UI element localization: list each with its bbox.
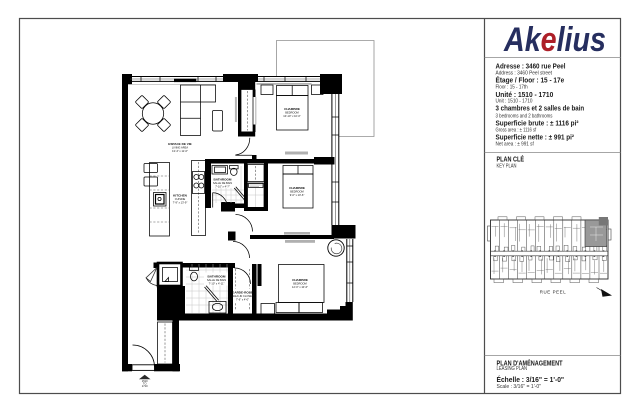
svg-text:7'-10" x 4'-11": 7'-10" x 4'-11"	[209, 281, 225, 285]
svg-text:BATHROOM: BATHROOM	[208, 275, 226, 279]
svg-text:SALLE DE BAIN: SALLE DE BAIN	[213, 181, 232, 185]
svg-text:Floor : 15 - 17th: Floor : 15 - 17th	[496, 84, 528, 90]
svg-text:BATHROOM: BATHROOM	[214, 178, 232, 182]
svg-text:7'-9" x 13'-9": 7'-9" x 13'-9"	[173, 200, 188, 204]
svg-text:1710: 1710	[142, 384, 148, 388]
svg-text:3 bedrooms and 2 bathrooms: 3 bedrooms and 2 bathrooms	[496, 113, 553, 119]
svg-text:Adresse : 3460 rue Peel: Adresse : 3460 rue Peel	[496, 64, 566, 71]
svg-text:CHAMBRE: CHAMBRE	[292, 278, 308, 282]
svg-text:Gross area : ± 1116 sf: Gross area : ± 1116 sf	[496, 128, 537, 134]
svg-text:CHAMBRE: CHAMBRE	[284, 107, 300, 111]
svg-text:Échelle : 3/16" = 1'-0": Échelle : 3/16" = 1'-0"	[497, 375, 565, 384]
svg-text:KEY PLAN: KEY PLAN	[497, 164, 517, 170]
svg-text:GARDE-ROBE: GARDE-ROBE	[232, 291, 253, 295]
svg-text:Superficie nette : ± 991 pi²: Superficie nette : ± 991 pi²	[496, 134, 575, 141]
svg-text:WALK-IN CLOSET: WALK-IN CLOSET	[232, 294, 254, 298]
svg-text:KITCHEN: KITCHEN	[173, 194, 188, 198]
svg-text:BEDROOM: BEDROOM	[290, 190, 303, 194]
svg-text:BEDROOM: BEDROOM	[293, 282, 306, 286]
svg-text:Net area : ± 991 sf: Net area : ± 991 sf	[496, 142, 535, 148]
svg-text:Akelius: Akelius	[503, 21, 606, 59]
svg-text:LEASING PLAN: LEASING PLAN	[497, 366, 528, 372]
svg-text:CUISINE: CUISINE	[175, 197, 186, 201]
svg-text:7'-10" x 4'-7": 7'-10" x 4'-7"	[215, 184, 230, 188]
svg-text:BEDROOM: BEDROOM	[285, 111, 298, 115]
svg-text:13'-4" x 11'-6": 13'-4" x 11'-6"	[172, 149, 188, 153]
svg-text:3 chambres et 2 salles de bain: 3 chambres et 2 salles de bain	[496, 106, 585, 113]
svg-text:Superficie brute : ± 1116 pi²: Superficie brute : ± 1116 pi²	[496, 120, 580, 127]
svg-text:Scale : 3/16" = 1'-0": Scale : 3/16" = 1'-0"	[497, 384, 542, 390]
svg-text:7'-6" x 4'-0": 7'-6" x 4'-0"	[236, 298, 249, 302]
svg-text:SALLE DE BAIN: SALLE DE BAIN	[207, 278, 226, 282]
svg-text:RUE PEEL: RUE PEEL	[540, 290, 567, 295]
svg-text:Unit : 1510 - 1710: Unit : 1510 - 1710	[496, 99, 533, 105]
svg-text:ESPACE DE VIE: ESPACE DE VIE	[168, 142, 192, 146]
svg-text:12'-0" x 10'-6": 12'-0" x 10'-6"	[292, 285, 308, 289]
svg-text:9'-0" x 10'-6": 9'-0" x 10'-6"	[290, 193, 305, 197]
svg-text:Étage / Floor : 15 - 17e: Étage / Floor : 15 - 17e	[496, 76, 565, 85]
svg-text:LIVING AREA: LIVING AREA	[172, 146, 188, 150]
svg-text:PLAN CLÉ: PLAN CLÉ	[497, 155, 525, 164]
svg-text:CHAMBRE: CHAMBRE	[289, 186, 305, 190]
svg-text:10'-10" x 10'-0": 10'-10" x 10'-0"	[283, 114, 300, 118]
svg-text:Address : 3460 Peel street: Address : 3460 Peel street	[496, 71, 553, 77]
